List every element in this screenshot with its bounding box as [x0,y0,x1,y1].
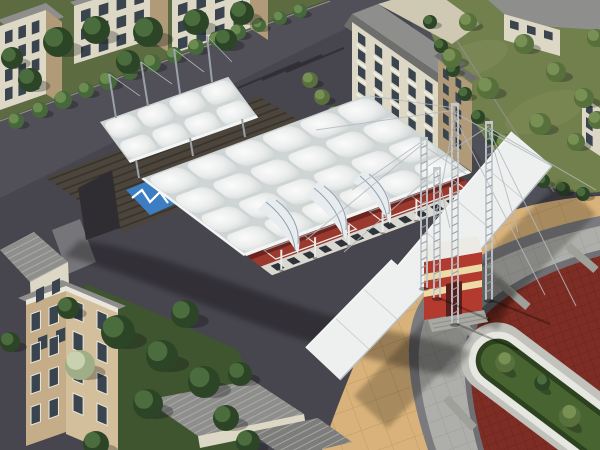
architectural-render-scene [0,0,600,450]
tree-highlight [274,12,283,21]
tree-highlight [79,83,89,93]
tree-highlight [33,103,43,113]
window [73,331,83,353]
tree-highlight [84,432,100,448]
tree-highlight [478,78,492,92]
tree-highlight [589,112,600,123]
tree-highlight [103,316,124,337]
pole-base-shadow [279,270,284,272]
window [31,373,40,394]
tree-highlight [294,5,303,14]
tree-highlight [144,55,155,66]
mast-base-shadow [419,287,429,291]
tree-highlight [148,341,168,361]
window [31,404,40,425]
tree-highlight [189,40,199,50]
tree-highlight [547,63,559,75]
tree-highlight [19,69,34,84]
render-canvas [0,0,600,450]
window [31,342,40,363]
tree-highlight [9,114,19,124]
tree-highlight [45,28,64,47]
tree-highlight [568,134,579,145]
window [97,341,107,363]
mast-cap [420,137,428,140]
pole-base-shadow [380,232,385,234]
tree-highlight [184,10,200,26]
bldg-tl1-side [46,10,62,104]
tree-highlight [135,18,154,37]
tree-highlight [303,73,313,83]
window [73,393,83,415]
tree-highlight [515,35,527,47]
tree-highlight [216,30,230,44]
tree-highlight [460,14,471,25]
window [97,403,107,425]
window [49,397,58,418]
tree-highlight [459,88,468,97]
tree-highlight [1,333,13,345]
pole-base-shadow [414,220,419,222]
tree-highlight [55,92,66,103]
tree-highlight [472,111,481,120]
tree-highlight [231,2,246,17]
tree-highlight [2,48,16,62]
tree-highlight [117,51,132,66]
tree-highlight [588,30,599,41]
window [49,335,58,356]
tree-highlight [443,49,455,61]
tree-highlight [530,114,544,128]
tree-highlight [435,40,444,49]
tree-highlight [172,301,189,318]
tree-highlight [577,188,586,197]
window [31,311,40,332]
tree-highlight [58,298,72,312]
tree-highlight [190,367,210,387]
tree-highlight [237,431,252,446]
tree-highlight [315,90,325,100]
tree-highlight [83,17,100,34]
tree-highlight [214,406,230,422]
pole-base-shadow [313,257,318,259]
mast-cap [433,167,441,170]
tree-highlight [229,363,244,378]
mast-cap [485,121,493,124]
mast-cap [451,103,459,106]
tree-highlight [575,89,587,101]
window [49,366,58,387]
tree-highlight [424,16,433,25]
tree-highlight [135,390,154,409]
tree-highlight [67,351,86,370]
